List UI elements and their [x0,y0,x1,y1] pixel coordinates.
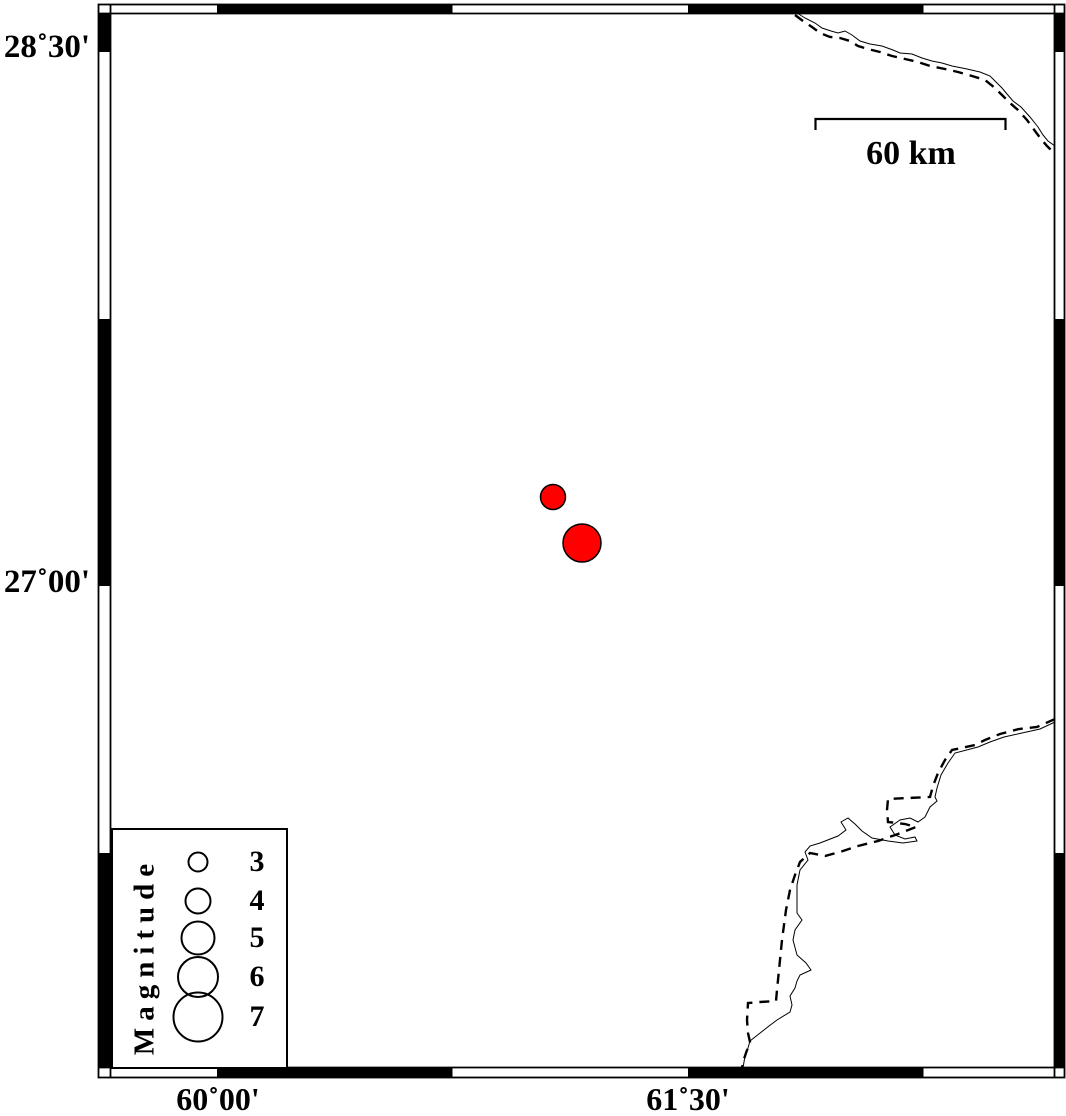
legend-circle-m3 [188,852,209,873]
legend-value-m5: 5 [250,923,265,953]
epicenters-layer [541,485,602,563]
legend-value-m3: 3 [250,847,265,877]
lon-label-left: 60˚00' [176,1083,260,1115]
lon-label-right: 61˚30' [646,1083,730,1115]
legend-circle-m7 [173,992,224,1043]
lat-label-top: 28˚30' [4,31,90,64]
legend-title: Magnitude [131,857,160,1055]
legend-value-m4: 4 [250,886,265,916]
scale-bar-label: 60 km [866,137,956,171]
border-dashed-line-se [742,719,1055,1068]
scale-bar [816,119,1006,130]
legend-circle-m5 [181,921,216,956]
legend-circle-m4 [185,888,212,915]
coastline-ne [797,13,1055,146]
epicenter-marker [541,485,566,510]
lat-label-bottom: 27˚00' [4,566,90,599]
legend-value-m6: 6 [250,962,265,992]
magnitude-legend: Magnitude 3 4 5 6 7 [111,828,288,1069]
seismicity-map-figure: 28˚30' 27˚00' 60˚00' 61˚30' 60 km Magnit… [0,0,1066,1116]
legend-value-m7: 7 [250,1002,265,1032]
epicenter-marker [563,524,601,562]
border-dashed-line-ne [795,15,1053,152]
